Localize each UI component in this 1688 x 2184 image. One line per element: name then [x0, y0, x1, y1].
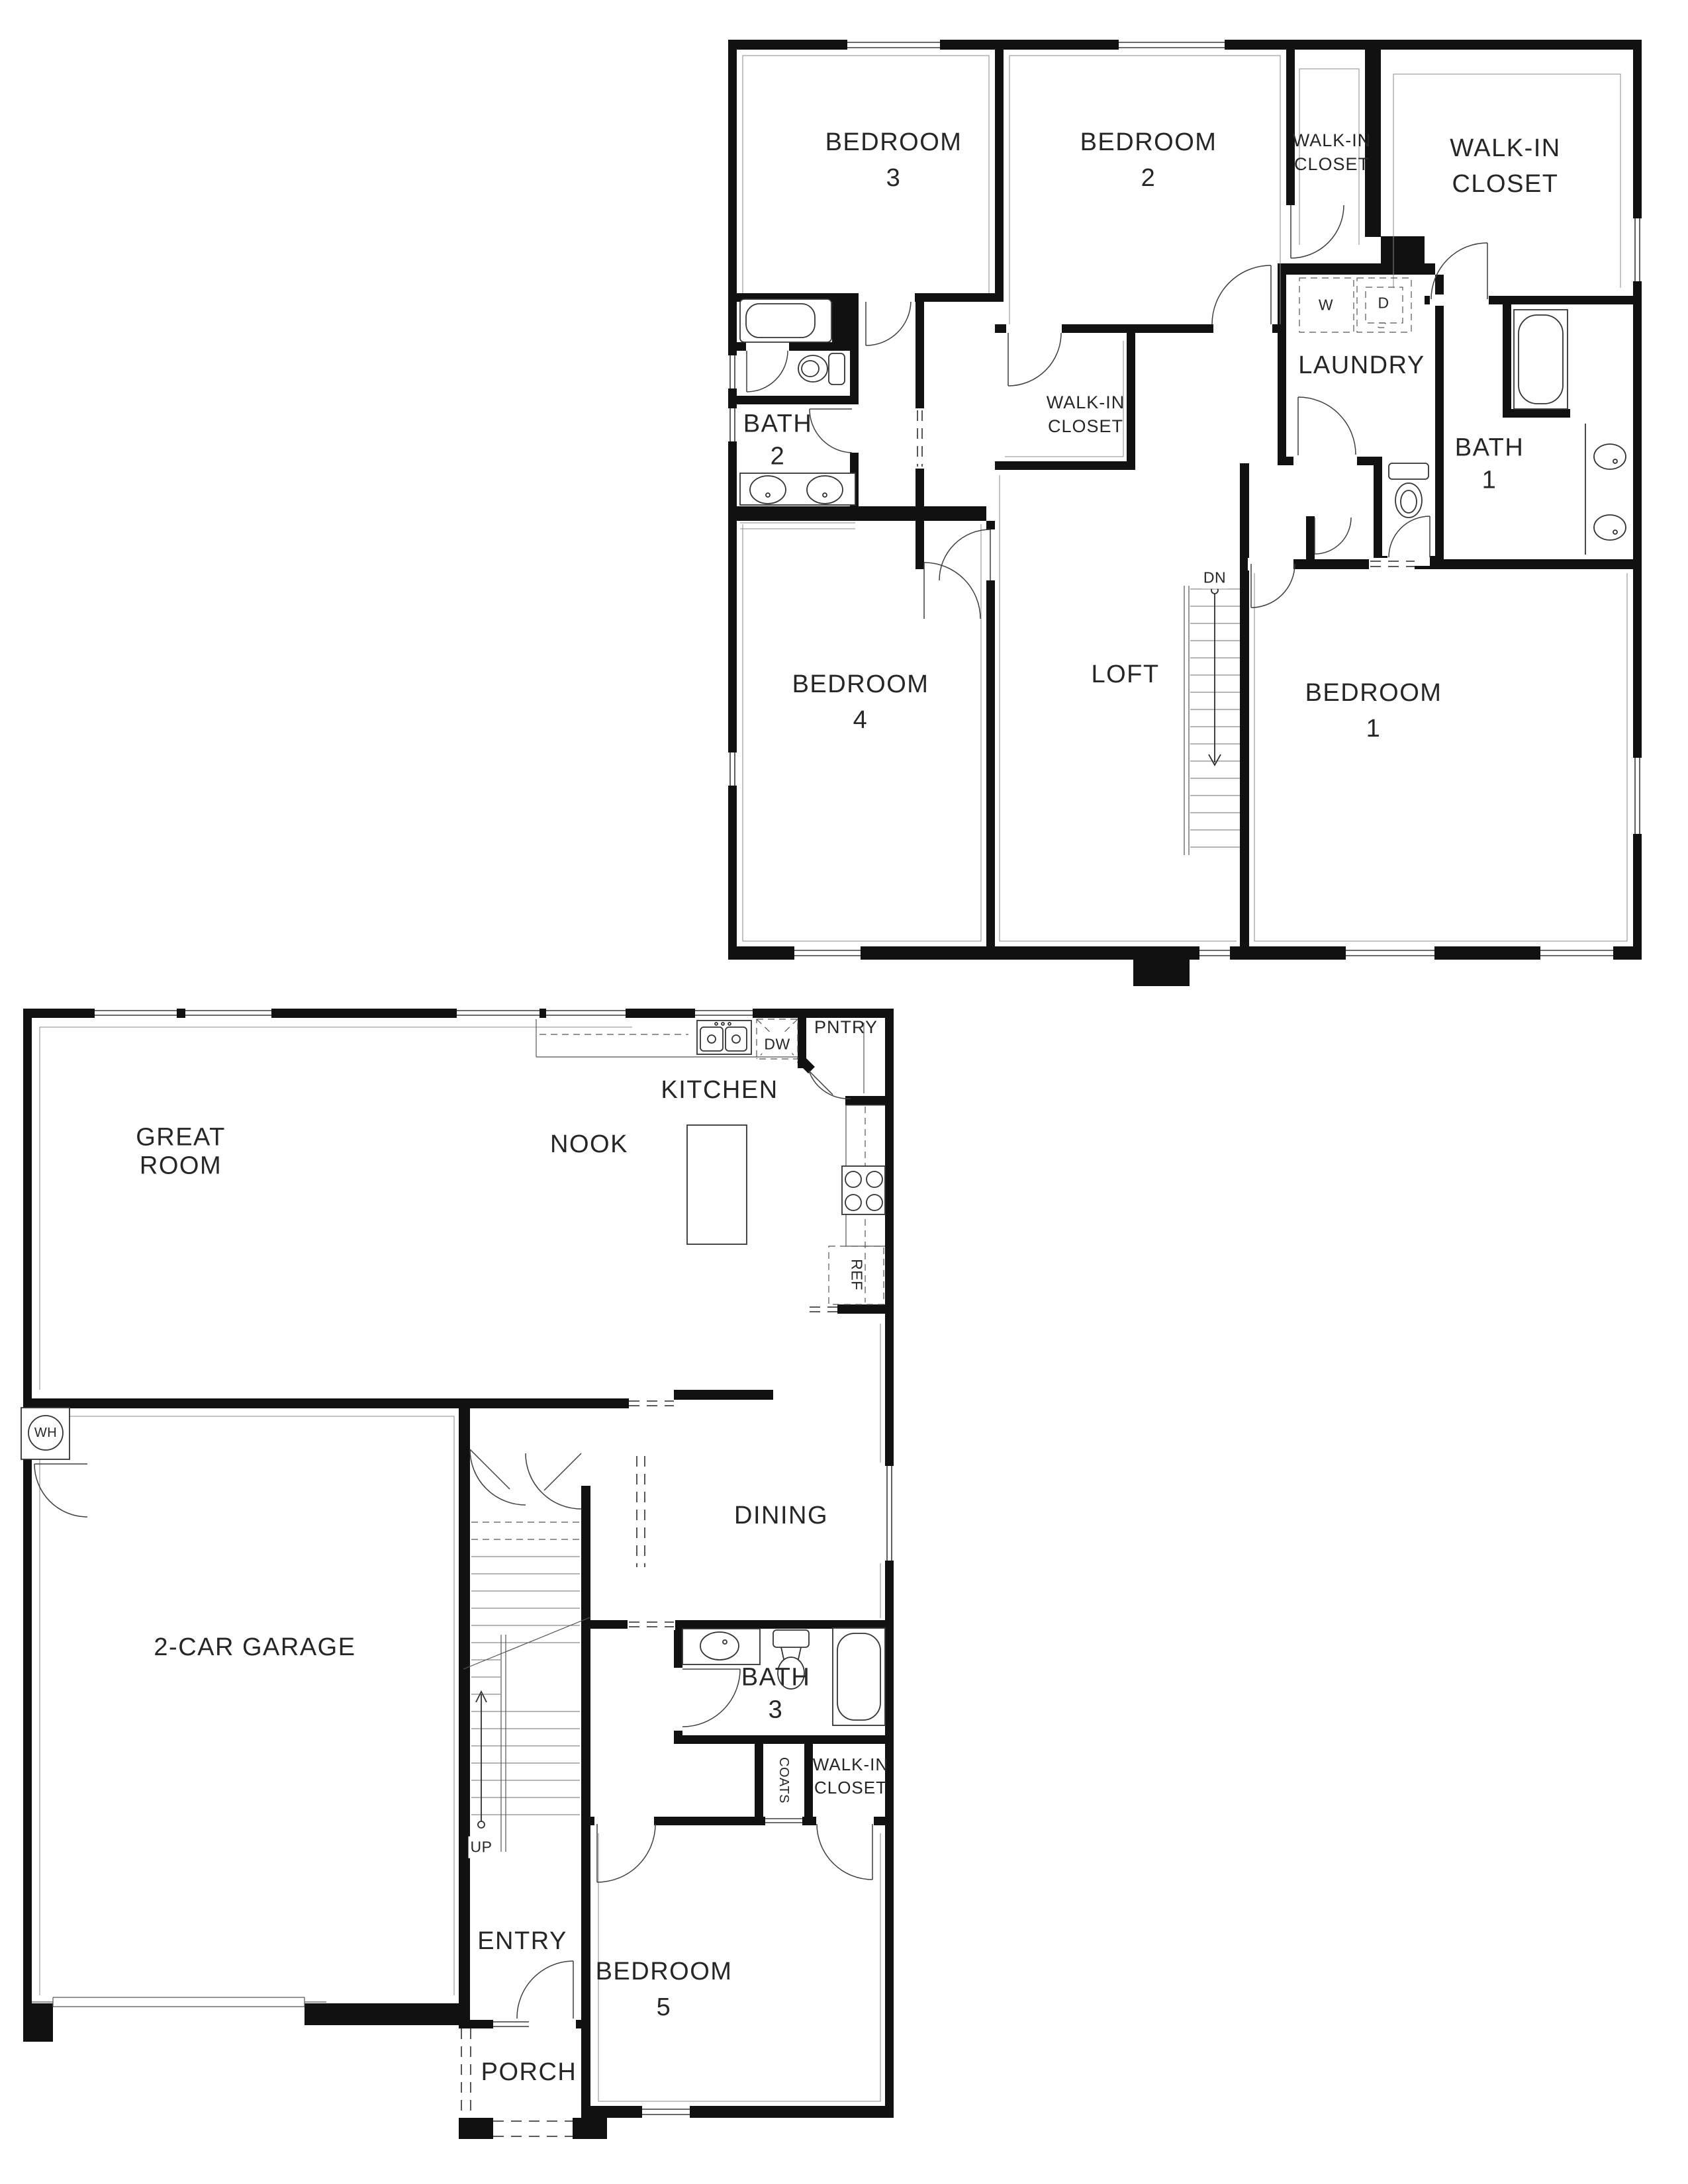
stairs-up-label: UP [469, 1837, 494, 1858]
bath3-toilet-fixture [773, 1630, 809, 1647]
refrigerator-label: REF [846, 1259, 868, 1291]
garage-house-door [34, 1464, 87, 1517]
garage-door [32, 1997, 326, 2007]
kitchen-island [687, 1125, 747, 1244]
room-label-bath2: BATH 2 [743, 408, 813, 474]
room-label-walk-in-closet-mid: WALK-IN CLOSET [1047, 390, 1125, 438]
room-label-bedroom2: BEDROOM 2 [1080, 125, 1217, 197]
washer-label: W [1319, 295, 1333, 316]
front-door [517, 1961, 573, 2019]
first-floor-doors [34, 1449, 872, 2019]
floor-plan-drawing [0, 0, 1688, 2184]
room-label-great-room: GREAT ROOM [136, 1123, 226, 1179]
water-heater-label: WH [34, 1424, 57, 1442]
room-label-bedroom5: BEDROOM 5 [596, 1954, 733, 2026]
first-floor-stairs [463, 1522, 590, 1852]
room-label-walk-in-closet-large: WALK-IN CLOSET [1450, 131, 1560, 203]
toilet-fixture [1389, 463, 1429, 479]
pantry-door [809, 1071, 851, 1099]
closet-door [817, 1824, 872, 1880]
floor-plan: BEDROOM 3 BEDROOM 2 WALK-IN CLOSET WALK-… [0, 0, 1688, 2184]
stairs-down-label: DN [1201, 567, 1228, 589]
pantry-label: PNTRY [814, 1015, 878, 1039]
dishwasher-label: DW [762, 1034, 792, 1056]
room-label-garage: 2-CAR GARAGE [154, 1630, 355, 1666]
coats-label: COATS [774, 1757, 793, 1803]
room-label-bedroom1: BEDROOM 1 [1305, 676, 1442, 747]
room-label-nook: NOOK [550, 1127, 628, 1163]
room-label-dining: DINING [734, 1498, 828, 1534]
room-label-entry: ENTRY [477, 1924, 567, 1960]
second-floor-stairs [1184, 586, 1240, 855]
room-label-bedroom3: BEDROOM 3 [825, 125, 962, 197]
room-label-laundry: LAUNDRY [1298, 348, 1425, 384]
room-label-walk-in-closet-small: WALK-IN CLOSET [1293, 128, 1372, 176]
washer-dryer-boxes [1299, 278, 1411, 332]
room-label-porch: PORCH [481, 2055, 577, 2091]
room-label-bath3: BATH 3 [741, 1662, 811, 1727]
bath3-door [682, 1669, 740, 1727]
room-label-kitchen: KITCHEN [661, 1073, 778, 1109]
room-label-bedroom4: BEDROOM 4 [792, 667, 929, 739]
room-label-walk-in-closet: WALK-IN CLOSET [813, 1753, 888, 1799]
bedroom5-door [597, 1824, 655, 1882]
room-label-bath1: BATH 1 [1455, 432, 1524, 498]
room-label-loft: LOFT [1091, 657, 1159, 693]
dryer-label: D [1378, 293, 1389, 314]
